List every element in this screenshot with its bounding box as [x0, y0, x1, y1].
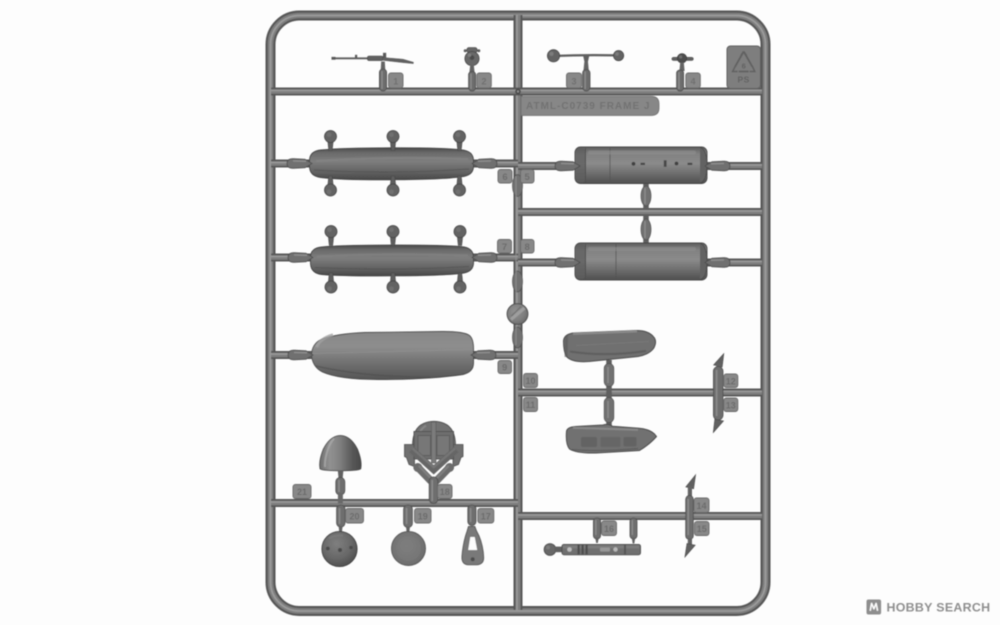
svg-text:PS: PS: [738, 75, 750, 85]
svg-text:6: 6: [742, 62, 746, 71]
svg-text:12: 12: [726, 377, 736, 387]
svg-text:ATML-C0739 FRAME J: ATML-C0739 FRAME J: [526, 101, 651, 112]
svg-text:21: 21: [297, 487, 307, 497]
svg-text:16: 16: [604, 524, 614, 534]
svg-text:HOBBY SEARCH: HOBBY SEARCH: [887, 601, 991, 615]
svg-text:20: 20: [349, 512, 359, 522]
svg-text:6: 6: [502, 172, 507, 183]
svg-text:11: 11: [526, 400, 536, 410]
svg-text:1: 1: [393, 77, 398, 87]
svg-text:18: 18: [440, 487, 450, 497]
svg-text:3: 3: [571, 77, 576, 87]
svg-text:13: 13: [726, 401, 736, 411]
svg-text:8: 8: [525, 242, 530, 253]
svg-text:19: 19: [418, 512, 428, 522]
svg-text:14: 14: [696, 501, 706, 511]
svg-text:15: 15: [697, 524, 707, 534]
svg-text:17: 17: [481, 512, 491, 522]
svg-text:9: 9: [502, 363, 507, 374]
svg-text:5: 5: [525, 172, 531, 183]
svg-text:2: 2: [481, 77, 486, 87]
svg-text:4: 4: [690, 77, 695, 87]
svg-text:10: 10: [525, 376, 535, 386]
svg-text:7: 7: [502, 242, 507, 253]
